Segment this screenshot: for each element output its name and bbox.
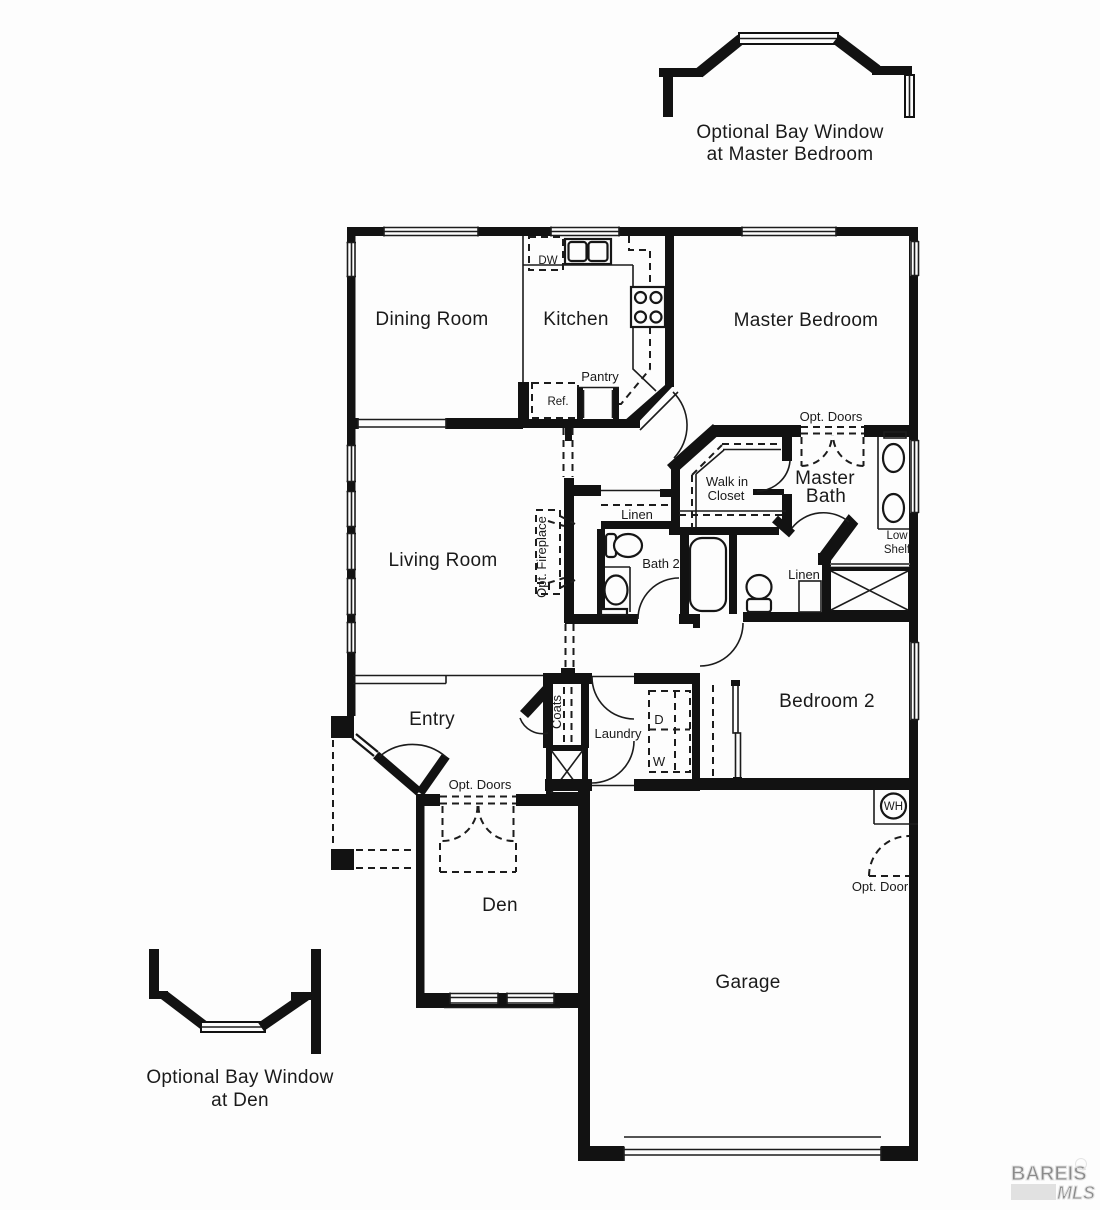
svg-text:W: W [653, 754, 666, 769]
svg-text:Living Room: Living Room [389, 550, 498, 571]
svg-text:WH: WH [884, 801, 903, 813]
svg-text:Opt. Door: Opt. Door [852, 879, 909, 894]
svg-text:Opt. Doors: Opt. Doors [449, 777, 512, 792]
svg-text:Bath: Bath [806, 486, 846, 507]
svg-text:D: D [654, 712, 663, 727]
svg-text:Optional Bay Window: Optional Bay Window [696, 122, 883, 143]
svg-text:Pantry: Pantry [581, 369, 619, 384]
svg-text:Coats: Coats [549, 695, 564, 729]
svg-text:Master Bedroom: Master Bedroom [734, 310, 879, 331]
svg-text:Shelf: Shelf [884, 544, 911, 556]
svg-text:Linen: Linen [788, 567, 820, 582]
svg-text:Low: Low [886, 530, 908, 542]
svg-text:Opt. Doors: Opt. Doors [800, 409, 863, 424]
svg-text:Optional Bay Window: Optional Bay Window [146, 1067, 333, 1088]
svg-text:Kitchen: Kitchen [543, 309, 608, 330]
svg-text:Garage: Garage [715, 972, 780, 993]
svg-text:Den: Den [482, 895, 518, 916]
svg-text:Closet: Closet [708, 488, 745, 503]
svg-text:at Den: at Den [211, 1090, 269, 1111]
svg-text:BAREIS: BAREIS [1011, 1163, 1087, 1185]
svg-text:Dining Room: Dining Room [375, 309, 488, 330]
svg-text:Laundry: Laundry [595, 726, 642, 741]
svg-text:Entry: Entry [409, 709, 455, 730]
svg-text:Ref.: Ref. [547, 396, 568, 408]
svg-text:Walk in: Walk in [706, 474, 748, 489]
svg-text:Bedroom 2: Bedroom 2 [779, 691, 875, 712]
svg-text:Linen: Linen [621, 507, 653, 522]
svg-text:at Master Bedroom: at Master Bedroom [707, 144, 874, 165]
svg-text:MLS: MLS [1057, 1183, 1095, 1203]
svg-text:Bath 2: Bath 2 [642, 556, 680, 571]
svg-text:Opt. Fireplace: Opt. Fireplace [534, 516, 549, 598]
